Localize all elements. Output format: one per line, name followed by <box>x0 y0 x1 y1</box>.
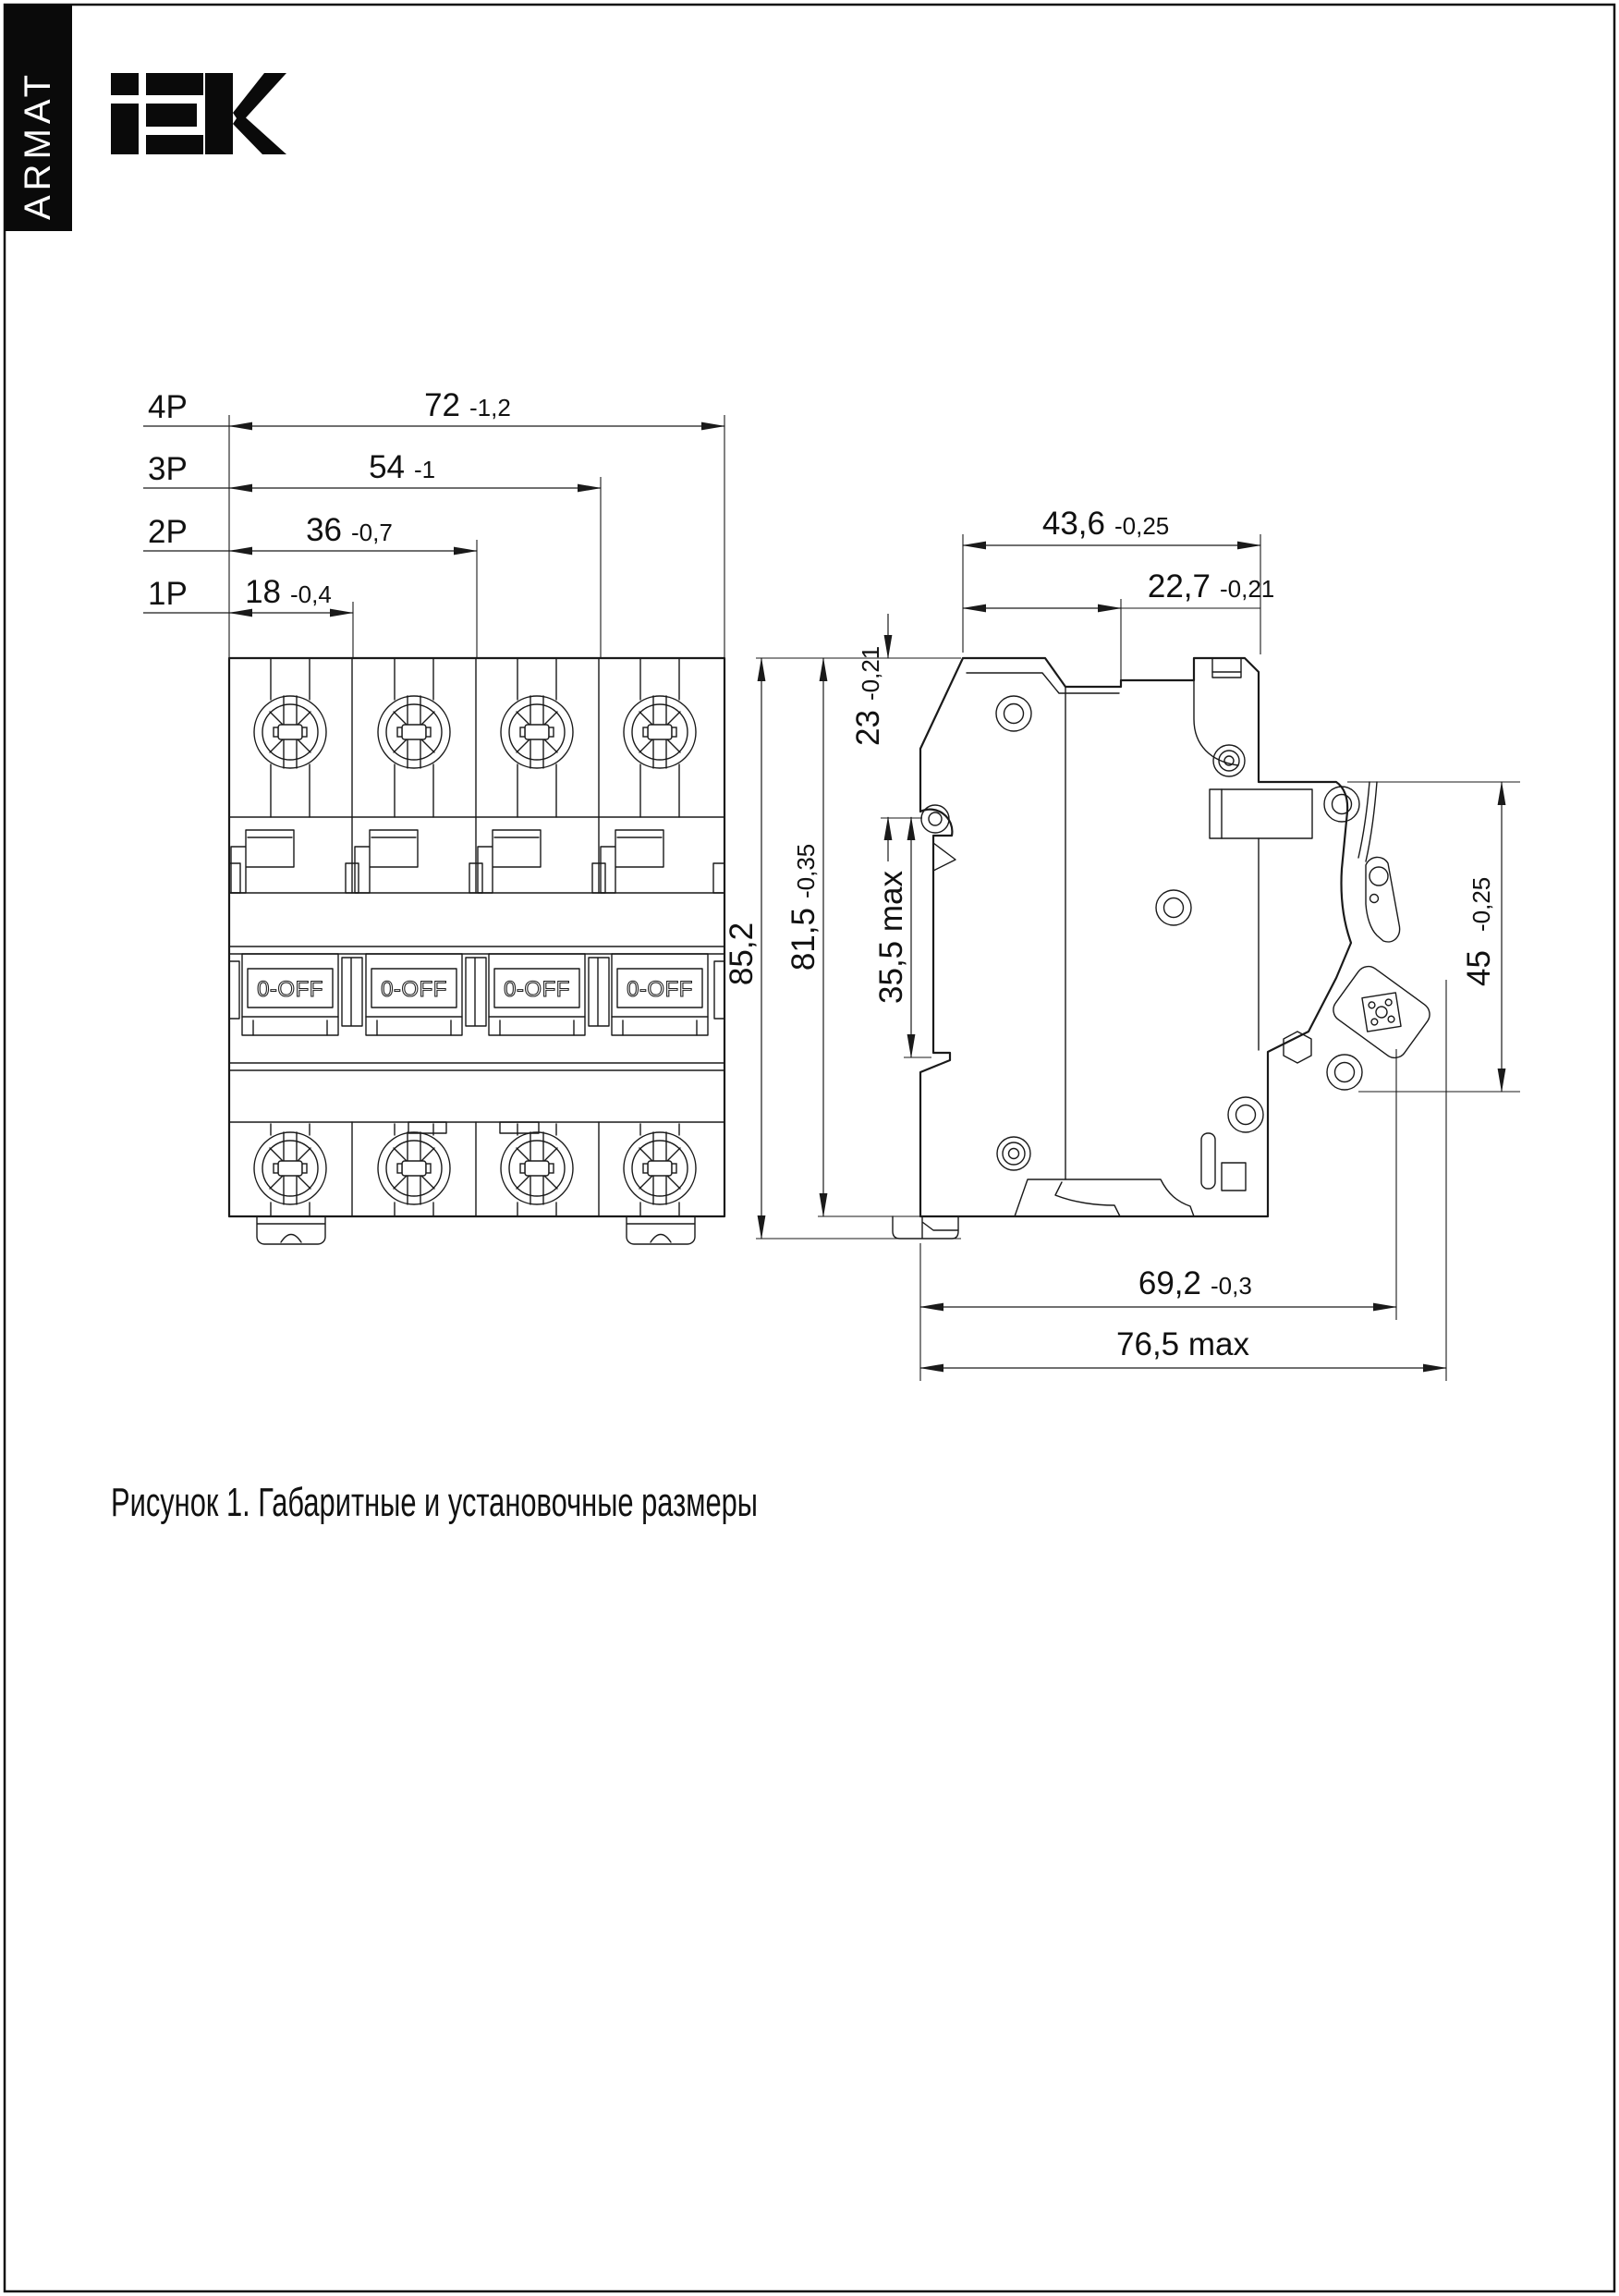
dim-2p-tol: -0,7 <box>351 519 393 546</box>
dim-front-height-tol: -0,25 <box>1467 877 1495 932</box>
front-dimensions: 4P 3P 2P 1P 72 -1,2 54 -1 36 -0,7 18 -0,… <box>143 387 724 658</box>
dim-height-body-value: 81,5 <box>785 908 822 971</box>
side-interior <box>967 658 1362 1216</box>
dim-1p-value: 18 <box>245 574 281 610</box>
dim-depth-body-value: 69,2 <box>1138 1265 1201 1301</box>
iek-logo <box>111 73 286 154</box>
dim-rail-zone: 35,5 max <box>873 871 909 1004</box>
figure-caption: Рисунок 1. Габаритные и установочные раз… <box>111 1480 758 1525</box>
front-body: 0-OFF 0-OFF 0-OFF 0-OFF <box>229 658 724 1244</box>
page-border <box>5 5 1614 2291</box>
series-label: ARMAT <box>18 70 58 220</box>
side-dimensions: 43,6 -0,25 22,7 -0,21 85,2 81,5 -0,35 <box>724 506 1520 1381</box>
drawing-page: ARMAT 4P 3P 2P 1P <box>0 0 1619 2296</box>
dim-3p-tol: -1 <box>414 456 435 483</box>
side-body-outline <box>920 658 1351 1216</box>
side-mounting-tab <box>893 1216 958 1239</box>
technical-drawing: ARMAT 4P 3P 2P 1P <box>0 0 1619 2296</box>
handle-label-4: 0-OFF <box>627 977 693 1002</box>
dim-top-to-rail-tol: -0,21 <box>857 646 884 701</box>
pole-label-2p: 2P <box>148 514 188 550</box>
latch-windows <box>229 830 724 893</box>
pole-label-3p: 3P <box>148 451 188 487</box>
mounting-tabs <box>257 1216 695 1244</box>
dim-depth-body-tol: -0,3 <box>1211 1272 1252 1300</box>
dim-top-to-rail-value: 23 <box>850 710 886 746</box>
dim-1p-tol: -0,4 <box>290 580 332 608</box>
handle-label-2: 0-OFF <box>381 977 447 1002</box>
dim-height-total: 85,2 <box>724 922 760 985</box>
brand-block: ARMAT <box>5 5 286 231</box>
dim-height-body-tol: -0,35 <box>792 844 820 898</box>
dim-width-top-tol: -0,25 <box>1114 512 1169 540</box>
upper-crossbar <box>229 893 724 954</box>
lower-crossbar <box>229 1063 724 1133</box>
pole-label-4p: 4P <box>148 389 188 425</box>
clip-arm-and-lever <box>1358 782 1400 942</box>
pole-handles: 0-OFF 0-OFF 0-OFF 0-OFF <box>229 954 724 1035</box>
handle-label-3: 0-OFF <box>504 977 570 1002</box>
dim-width-top-value: 43,6 <box>1042 506 1105 542</box>
pole-label-1p: 1P <box>148 576 188 612</box>
dim-4p-value: 72 <box>424 387 460 423</box>
dim-depth-max: 76,5 max <box>1116 1326 1249 1362</box>
dim-width-upper-tol: -0,21 <box>1220 575 1274 603</box>
dim-front-height-value: 45 <box>1461 950 1497 986</box>
din-clip-details <box>921 805 956 871</box>
dim-width-upper-value: 22,7 <box>1148 568 1211 605</box>
side-view: 43,6 -0,25 22,7 -0,21 85,2 81,5 -0,35 <box>724 506 1520 1381</box>
dim-4p-tol: -1,2 <box>469 394 511 421</box>
dim-2p-value: 36 <box>306 512 342 548</box>
front-view: 4P 3P 2P 1P 72 -1,2 54 -1 36 -0,7 18 -0,… <box>143 387 724 1244</box>
handle-label-1: 0-OFF <box>257 977 323 1002</box>
dim-3p-value: 54 <box>369 449 405 485</box>
side-terminal-screw <box>1329 961 1434 1062</box>
